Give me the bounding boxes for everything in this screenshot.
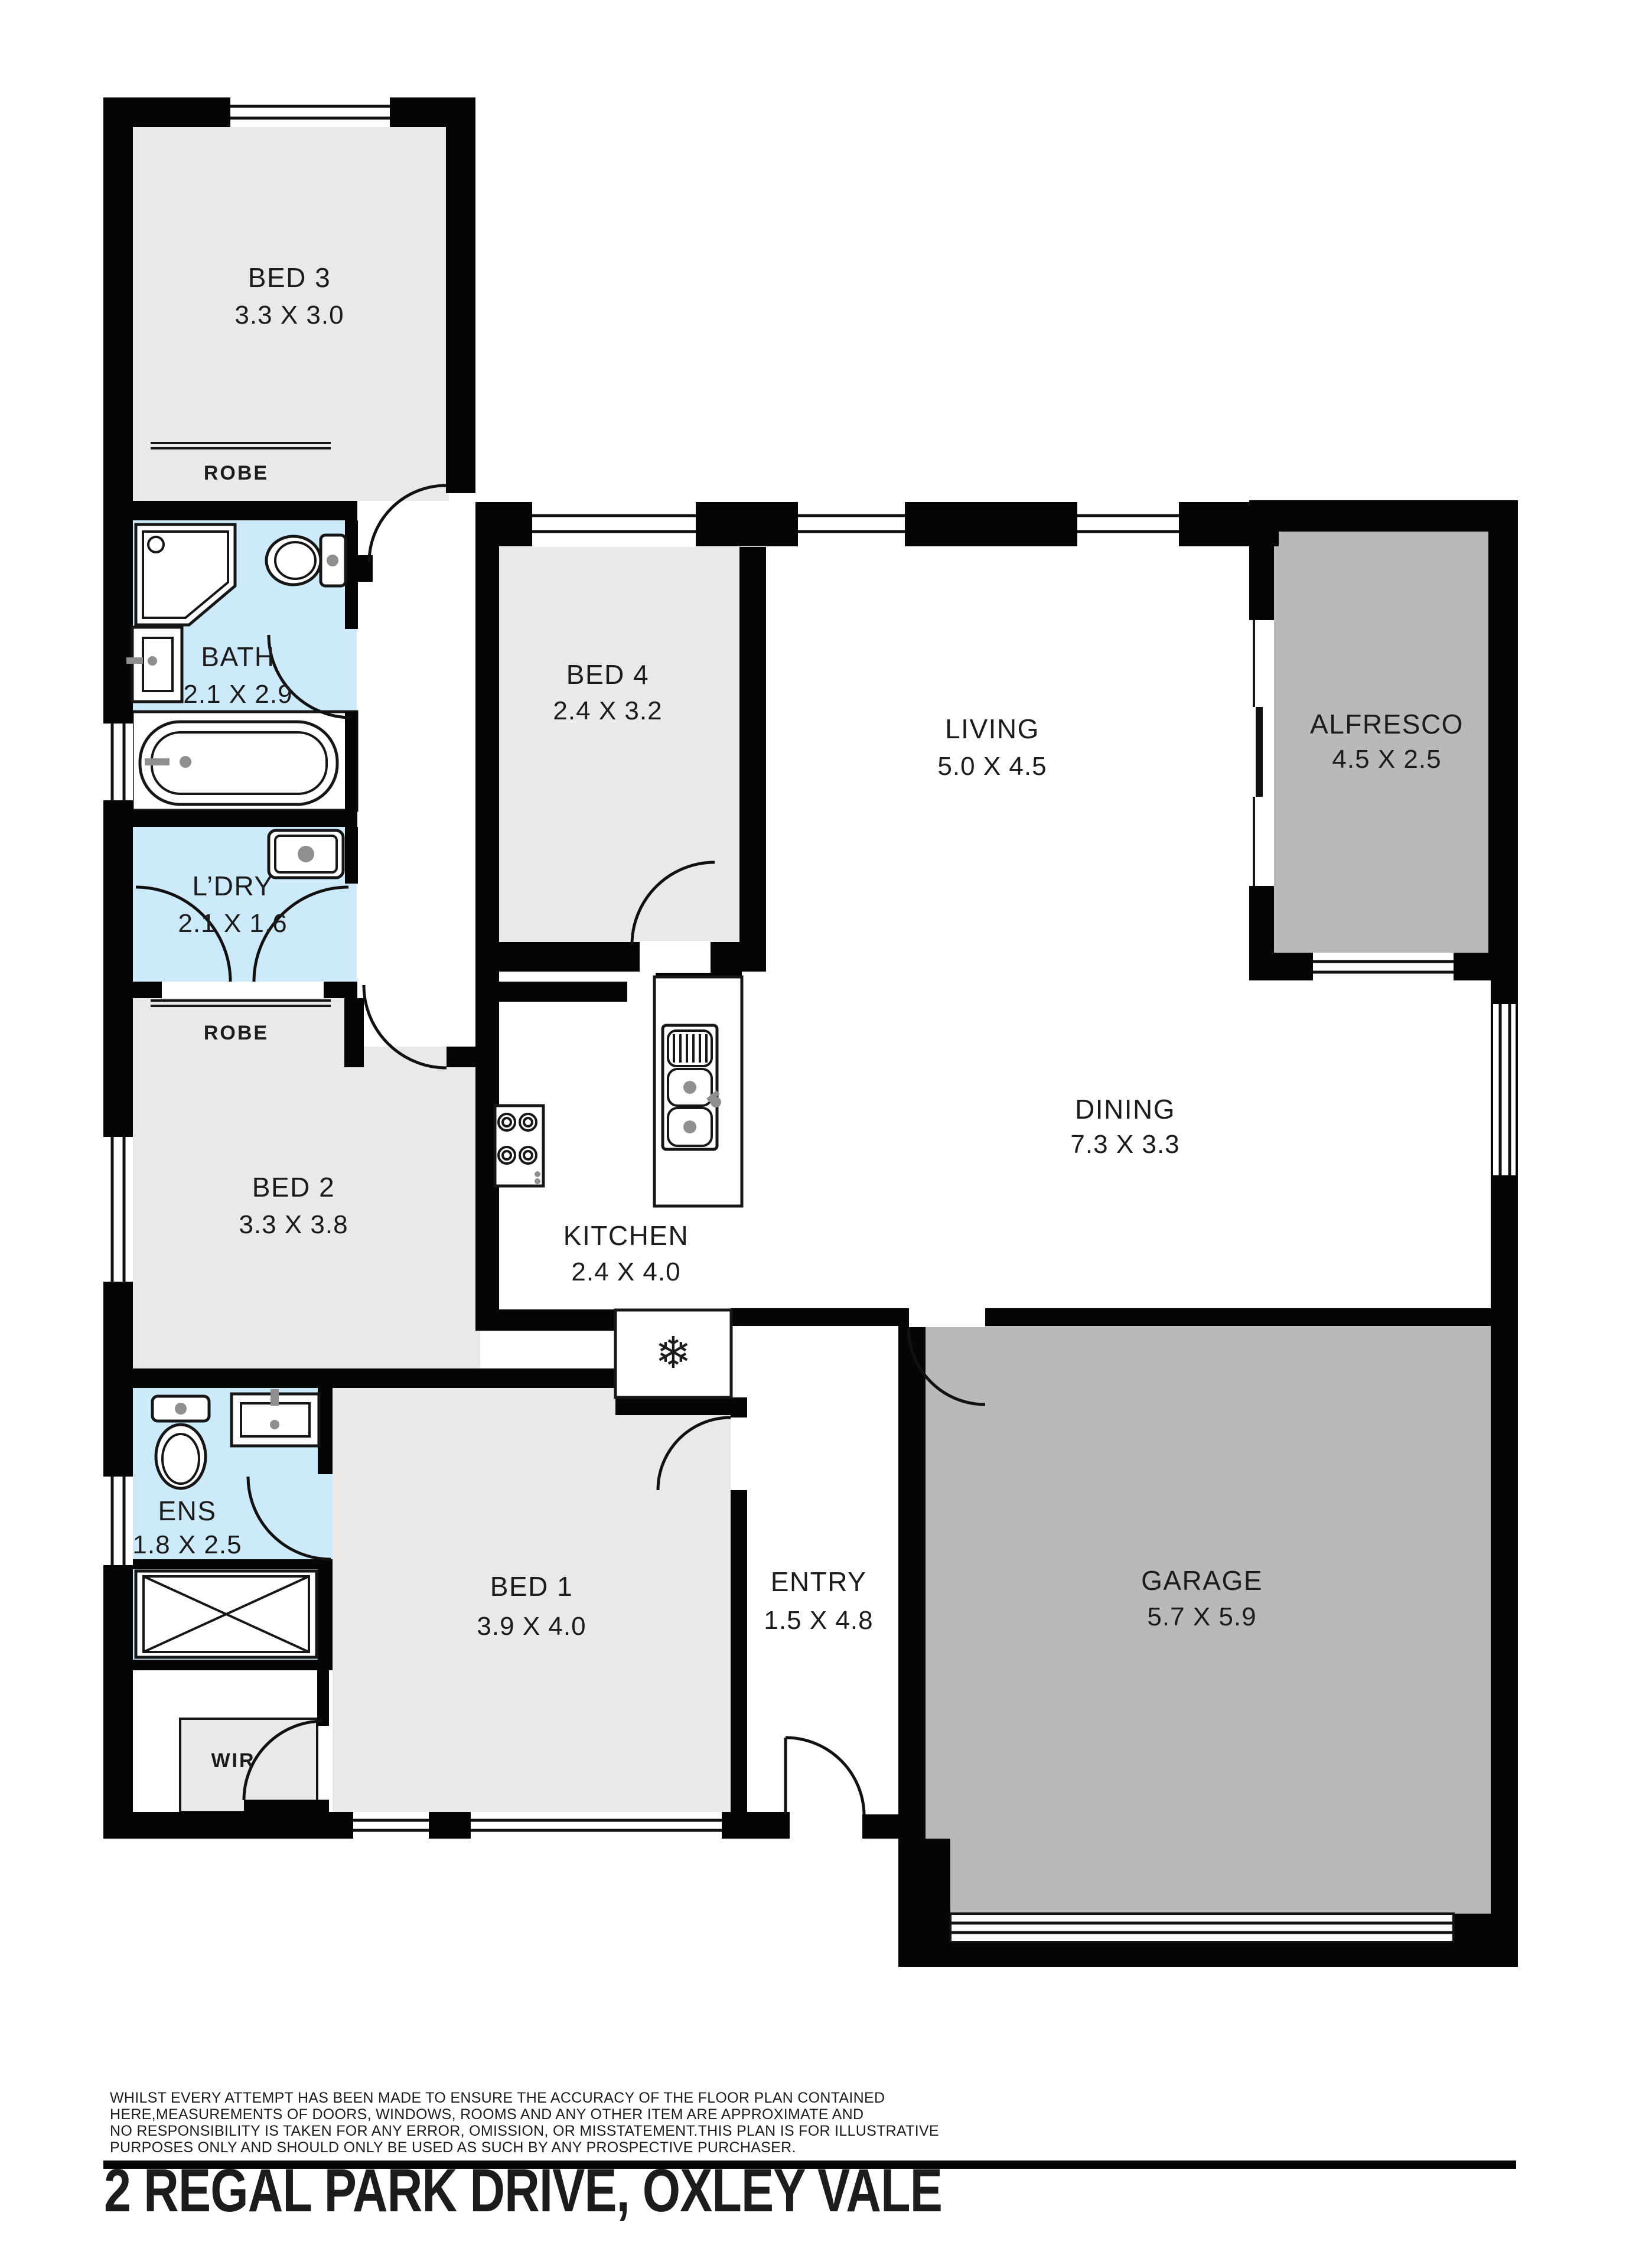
bed1-dims: 3.9 X 4.0 xyxy=(477,1612,586,1641)
floors xyxy=(130,124,1491,1914)
bed4-dims: 2.4 X 3.2 xyxy=(553,696,662,725)
ens-toilet-icon xyxy=(152,1396,209,1488)
ens-dims: 1.8 X 2.5 xyxy=(132,1530,242,1559)
living-window-1 xyxy=(798,502,905,546)
living-dims: 5.0 X 4.5 xyxy=(937,752,1047,781)
alfresco-dims: 4.5 X 2.5 xyxy=(1332,745,1441,774)
cooktop-icon xyxy=(495,1106,543,1186)
garage-door-gap xyxy=(909,1307,985,1327)
robe1-label: ROBE xyxy=(204,462,269,484)
alfresco-window xyxy=(1313,953,1454,980)
bath-window xyxy=(103,724,133,800)
bed1-floor xyxy=(333,1388,617,1812)
bed2-floor xyxy=(130,1047,480,1368)
bed4-window xyxy=(532,502,696,546)
bathtub-icon xyxy=(140,722,337,804)
entry-label: ENTRY xyxy=(771,1566,867,1597)
floor-plan-svg: ❄ BED 3 3.3 X 3.0 ROBE BATH 2.1 X 2.9 L’… xyxy=(0,0,1626,2268)
bed1-window-2 xyxy=(471,1812,722,1839)
kitchen-label: KITCHEN xyxy=(563,1220,689,1251)
address-title: 2 REGAL PARK DRIVE, OXLEY VALE xyxy=(104,2156,942,2224)
laundry-dims: 2.1 X 1.6 xyxy=(178,909,287,938)
bed3-window xyxy=(230,97,390,127)
ens-window xyxy=(103,1477,133,1565)
bed4-door-gap xyxy=(640,941,711,973)
laundry-trough-icon xyxy=(269,830,343,878)
alfresco-label: ALFRESCO xyxy=(1310,709,1464,739)
living-label: LIVING xyxy=(945,713,1040,744)
ens-vanity-icon xyxy=(232,1389,319,1446)
toilet-icon xyxy=(266,535,346,586)
bed4-floor xyxy=(499,547,739,942)
disclaimer-line-1: WHILST EVERY ATTEMPT HAS BEEN MADE TO EN… xyxy=(110,2090,885,2106)
laundry-label: L’DRY xyxy=(192,871,273,901)
ens-shower-base-icon xyxy=(136,1571,317,1657)
dining-label: DINING xyxy=(1075,1094,1175,1125)
alfresco-stacker-door xyxy=(1254,620,1263,886)
garage-dims: 5.7 X 5.9 xyxy=(1147,1602,1256,1631)
floor-plan-page: ❄ BED 3 3.3 X 3.0 ROBE BATH 2.1 X 2.9 L’… xyxy=(0,0,1626,2268)
ens-label: ENS xyxy=(158,1495,216,1526)
bed3-label: BED 3 xyxy=(248,262,331,293)
bath-vanity-icon xyxy=(126,627,182,702)
bed2-window xyxy=(103,1137,133,1282)
disclaimer-line-2: HERE,MEASUREMENTS OF DOORS, WINDOWS, ROO… xyxy=(110,2106,863,2123)
bed3-dims: 3.3 X 3.0 xyxy=(234,301,344,330)
bed2-dims: 3.3 X 3.8 xyxy=(239,1210,348,1239)
footer: WHILST EVERY ATTEMPT HAS BEEN MADE TO EN… xyxy=(103,2090,1516,2224)
bed1-window-1 xyxy=(353,1812,429,1839)
bed4-label: BED 4 xyxy=(566,659,649,690)
fridge-icon: ❄ xyxy=(615,1310,731,1397)
garage-label: GARAGE xyxy=(1141,1565,1263,1596)
entry-dims: 1.5 X 4.8 xyxy=(764,1606,873,1635)
disclaimer-line-4: PURPOSES ONLY AND SHOULD ONLY BE USED AS… xyxy=(110,2139,796,2156)
kitchen-dims: 2.4 X 4.0 xyxy=(571,1257,680,1286)
wir-label: WIR xyxy=(211,1749,255,1772)
front-door-arc xyxy=(786,1738,864,1814)
bed2-label: BED 2 xyxy=(252,1172,335,1203)
robe2-label: ROBE xyxy=(204,1022,269,1044)
alfresco-floor xyxy=(1274,532,1488,953)
kitchen-island xyxy=(654,977,742,1206)
disclaimer-line-3: NO RESPONSIBILITY IS TAKEN FOR ANY ERROR… xyxy=(110,2123,939,2139)
dining-dims: 7.3 X 3.3 xyxy=(1070,1130,1179,1159)
bed1-label: BED 1 xyxy=(490,1571,573,1602)
dining-window xyxy=(1493,1004,1516,1175)
garage-roller-door xyxy=(950,1914,1454,1942)
fridge-snowflake-glyph: ❄ xyxy=(655,1328,692,1377)
bed1-floor-east xyxy=(617,1415,731,1812)
living-window-2 xyxy=(1077,502,1179,546)
bath-label: BATH xyxy=(201,641,275,672)
bath-dims: 2.1 X 2.9 xyxy=(183,680,292,709)
